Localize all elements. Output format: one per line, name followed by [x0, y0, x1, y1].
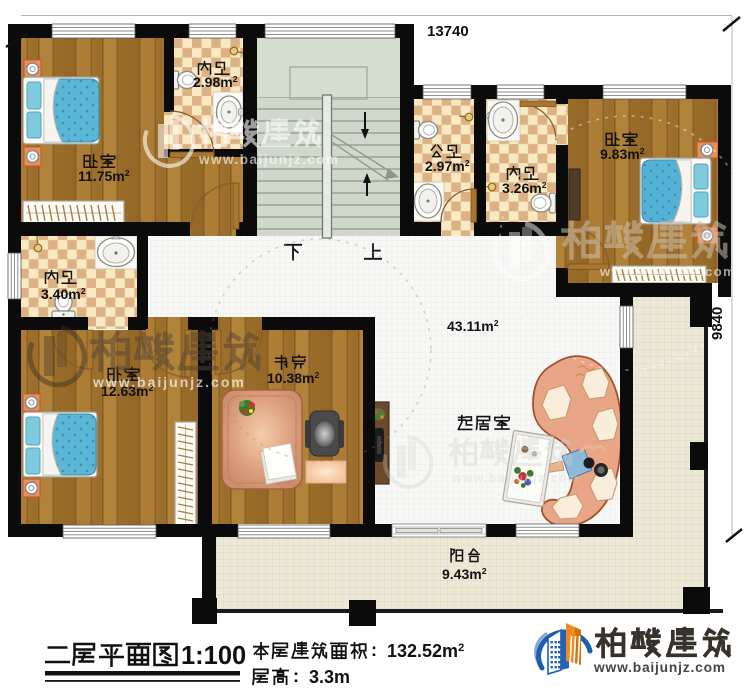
svg-text:www.baijunjz.com: www.baijunjz.com	[599, 264, 736, 279]
svg-text:www.baijunjz.com: www.baijunjz.com	[198, 152, 340, 167]
svg-text:3.26m2: 3.26m2	[502, 180, 547, 196]
svg-text::: :	[371, 640, 377, 660]
svg-text:11.75m2: 11.75m2	[78, 168, 130, 184]
svg-text:43.11m2: 43.11m2	[447, 318, 499, 334]
svg-text:www.baijunjz.com: www.baijunjz.com	[92, 374, 246, 390]
svg-text:3.3m: 3.3m	[309, 667, 350, 687]
svg-text:10.38m2: 10.38m2	[267, 370, 319, 386]
svg-text:2.97m2: 2.97m2	[425, 158, 470, 174]
svg-text:13740: 13740	[427, 23, 469, 40]
svg-text:132.52m2: 132.52m2	[387, 641, 464, 661]
svg-text:9840: 9840	[709, 307, 726, 340]
svg-text:3.40m2: 3.40m2	[41, 286, 86, 302]
svg-text:2.98m2: 2.98m2	[193, 74, 238, 90]
svg-text:9.83m2: 9.83m2	[600, 146, 645, 162]
svg-text:9.43m2: 9.43m2	[442, 566, 487, 582]
svg-text:www.baijunjz.com: www.baijunjz.com	[593, 660, 726, 675]
svg-text:www.baijunjz.com: www.baijunjz.com	[451, 471, 580, 485]
svg-text:1:100: 1:100	[181, 642, 246, 670]
svg-text::: :	[293, 666, 299, 686]
